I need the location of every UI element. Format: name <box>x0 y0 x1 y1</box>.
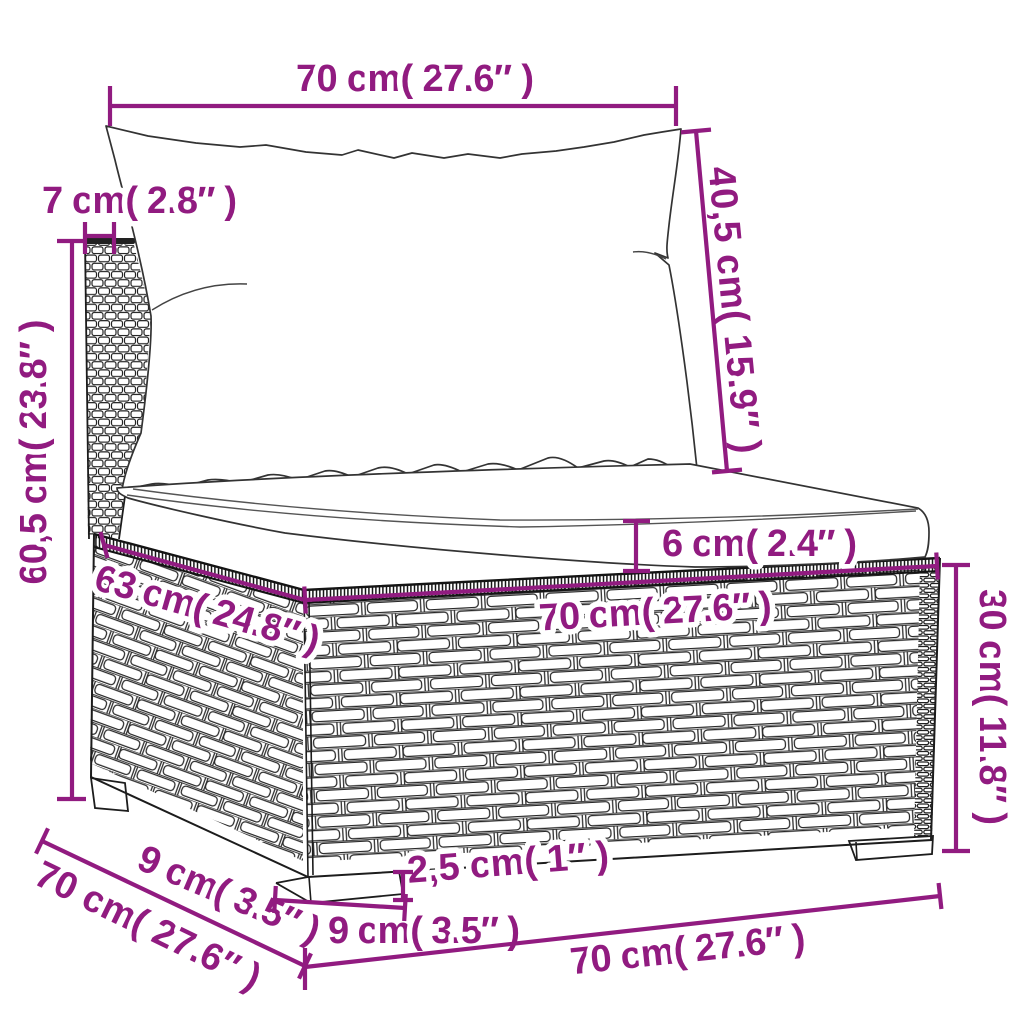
svg-text:70 cm( 27.6″ ): 70 cm( 27.6″ ) <box>296 58 534 100</box>
svg-text:60,5 cm( 23.8″ ): 60,5 cm( 23.8″ ) <box>13 320 55 585</box>
svg-text:6 cm( 2.4″ ): 6 cm( 2.4″ ) <box>662 523 857 565</box>
svg-text:30 cm( 11.8″ ): 30 cm( 11.8″ ) <box>971 589 1013 825</box>
svg-text:7 cm( 2.8″ ): 7 cm( 2.8″ ) <box>42 180 237 222</box>
